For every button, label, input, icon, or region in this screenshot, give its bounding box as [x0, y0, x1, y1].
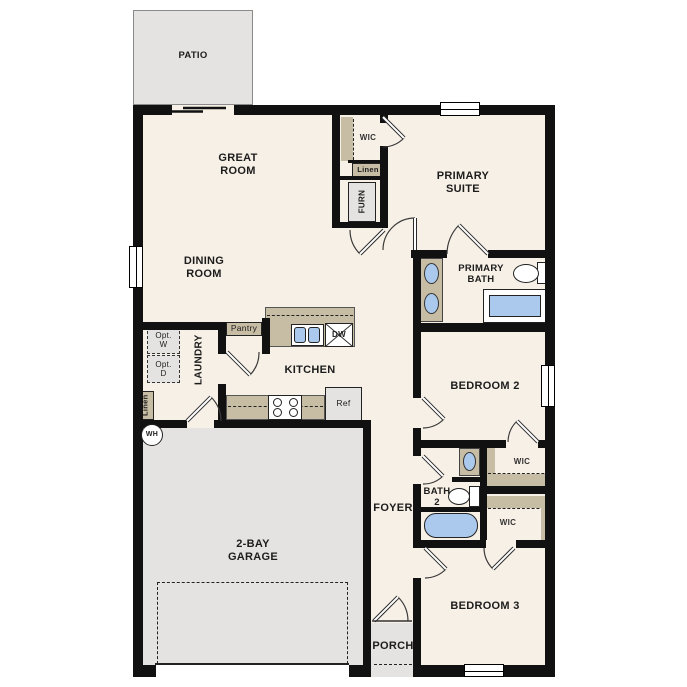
room-label-foyer: FOYER	[363, 502, 423, 515]
label-water-heater: WH	[141, 431, 163, 439]
label-wic-bedroom2: WIC	[507, 457, 537, 466]
room-label-great-room: GREAT ROOM	[198, 152, 278, 177]
room-label-bath2: BATH 2	[419, 487, 455, 509]
label-opt-washer: Opt. W	[147, 331, 180, 349]
room-label-kitchen: KITCHEN	[270, 364, 350, 377]
label-wic-bedroom3: WIC	[493, 518, 523, 527]
label-linen-hall: Linen	[352, 166, 384, 175]
label-pantry: Pantry	[226, 324, 262, 334]
room-label-porch: PORCH	[368, 640, 418, 653]
patio-slider-door-lines	[172, 108, 226, 112]
room-label-primary-suite: PRIMARY SUITE	[413, 170, 513, 195]
doors-layer	[0, 0, 687, 687]
room-label-bedroom2: BEDROOM 2	[425, 380, 545, 393]
room-label-laundry: LAUNDRY	[193, 330, 204, 390]
label-opt-dryer: Opt. D	[147, 360, 180, 378]
label-linen-laundry: Linen	[142, 391, 151, 419]
room-label-patio: PATIO	[163, 51, 223, 62]
room-label-bedroom3: BEDROOM 3	[425, 600, 545, 613]
label-refrigerator: Ref	[327, 399, 360, 409]
label-wic-primary: WIC	[353, 133, 383, 142]
room-label-primary-bath: PRIMARY BATH	[446, 264, 516, 286]
floor-plan: PATIO GREAT ROOM DINING ROOM PRIMARY SUI…	[0, 0, 687, 687]
room-label-garage: 2-BAY GARAGE	[203, 538, 303, 563]
label-dishwasher: DW	[327, 330, 351, 339]
label-furnace: FURN	[357, 184, 366, 220]
room-label-dining-room: DINING ROOM	[164, 255, 244, 280]
